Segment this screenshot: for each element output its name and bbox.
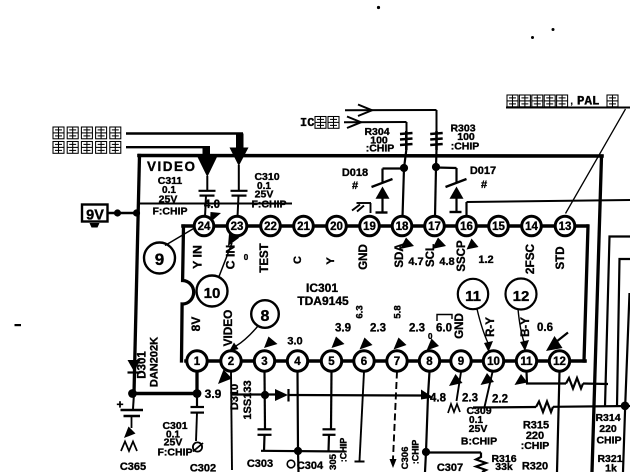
svg-text:220: 220 <box>599 423 617 435</box>
svg-text:R320: R320 <box>522 461 548 472</box>
svg-text:PAL: PAL <box>577 95 600 109</box>
svg-text:C307: C307 <box>437 462 463 472</box>
svg-text:23: 23 <box>231 221 244 233</box>
svg-text:GND: GND <box>454 313 466 339</box>
svg-text:25V: 25V <box>469 423 488 435</box>
svg-text:VIDEO: VIDEO <box>147 159 197 174</box>
svg-text:21: 21 <box>297 221 310 233</box>
svg-text:305: 305 <box>328 453 339 470</box>
svg-text:B-Y: B-Y <box>520 317 532 337</box>
svg-text:15: 15 <box>492 221 505 233</box>
svg-text:B:CHIP: B:CHIP <box>461 436 497 448</box>
svg-text:C303: C303 <box>247 458 273 470</box>
svg-text:2FSC: 2FSC <box>523 243 537 274</box>
svg-text:VIDEO: VIDEO <box>221 310 235 347</box>
svg-text:8: 8 <box>426 356 433 368</box>
svg-text:2.3: 2.3 <box>370 323 386 335</box>
svg-text:C: C <box>292 256 304 264</box>
svg-text:F:CHIP: F:CHIP <box>153 206 188 218</box>
svg-text:C302: C302 <box>190 463 216 472</box>
svg-text:5.8: 5.8 <box>393 305 404 318</box>
svg-text:6: 6 <box>361 356 367 368</box>
svg-text:4.7: 4.7 <box>408 256 423 268</box>
svg-text:GND: GND <box>358 244 370 270</box>
svg-text:8V: 8V <box>189 317 203 332</box>
svg-text:D017: D017 <box>470 165 496 177</box>
svg-text:2.3: 2.3 <box>462 393 478 405</box>
svg-text:SCL: SCL <box>425 244 437 267</box>
svg-text:12: 12 <box>553 356 566 368</box>
svg-text:C IN: C IN <box>224 245 238 270</box>
svg-text:0: 0 <box>244 253 249 262</box>
svg-text::CHIP: :CHIP <box>366 143 395 155</box>
svg-text:4: 4 <box>294 356 301 368</box>
svg-text:0: 0 <box>428 332 433 341</box>
svg-text::CHIP: :CHIP <box>451 141 480 153</box>
svg-text:TDA9145: TDA9145 <box>297 294 349 308</box>
svg-text:2.2: 2.2 <box>492 394 508 406</box>
svg-text:C306: C306 <box>400 447 411 470</box>
svg-text:3.9: 3.9 <box>205 387 222 401</box>
svg-text:10: 10 <box>204 285 221 302</box>
svg-text:Y: Y <box>325 257 337 265</box>
svg-text:9: 9 <box>458 356 464 368</box>
svg-text:6.0: 6.0 <box>436 323 452 335</box>
svg-text:13: 13 <box>559 221 572 233</box>
svg-text:3.9: 3.9 <box>335 323 351 335</box>
svg-text:+: + <box>117 398 124 412</box>
svg-text:7: 7 <box>394 356 400 368</box>
svg-text:4.0: 4.0 <box>204 199 220 211</box>
svg-text:19: 19 <box>363 221 376 233</box>
svg-text:DAN202K: DAN202K <box>149 337 161 387</box>
svg-text:12: 12 <box>513 288 530 305</box>
svg-text:D018: D018 <box>342 167 368 179</box>
svg-text:1k: 1k <box>605 463 617 472</box>
svg-text:4.8: 4.8 <box>430 393 447 405</box>
svg-text:24: 24 <box>198 221 211 233</box>
svg-text:#: # <box>352 180 358 192</box>
svg-text:22: 22 <box>264 221 277 233</box>
svg-text:1.2: 1.2 <box>478 254 493 266</box>
svg-text:17: 17 <box>428 221 441 233</box>
svg-text:25V: 25V <box>159 194 178 206</box>
svg-text:#: # <box>481 179 487 191</box>
svg-text:SSCP: SSCP <box>456 240 468 272</box>
svg-text:SDA: SDA <box>394 243 406 267</box>
svg-text:CHIP: CHIP <box>596 435 621 447</box>
svg-text:F:CHIP: F:CHIP <box>252 199 287 211</box>
svg-text:TEST: TEST <box>259 243 271 272</box>
svg-text:D310: D310 <box>229 384 241 410</box>
svg-text:3.0: 3.0 <box>287 336 302 348</box>
svg-text:20: 20 <box>330 221 343 233</box>
svg-text:11: 11 <box>520 356 533 368</box>
svg-text:18: 18 <box>396 221 409 233</box>
svg-text:11: 11 <box>465 288 481 305</box>
svg-text::CHIP: :CHIP <box>411 440 421 465</box>
svg-text:F:CHIP: F:CHIP <box>158 447 193 459</box>
svg-text:2.3: 2.3 <box>409 323 425 335</box>
svg-text:8: 8 <box>261 308 270 325</box>
svg-text:10: 10 <box>487 356 500 368</box>
svg-text:3: 3 <box>261 356 267 368</box>
svg-text:C365: C365 <box>120 461 146 472</box>
svg-text:2: 2 <box>228 356 234 368</box>
svg-text:9V: 9V <box>86 208 104 224</box>
svg-text:R-Y: R-Y <box>485 317 497 337</box>
svg-text:14: 14 <box>525 221 538 233</box>
svg-text:D301: D301 <box>137 351 149 379</box>
svg-text:16: 16 <box>460 221 473 233</box>
svg-text::CHIP: :CHIP <box>521 440 550 452</box>
svg-text:,: , <box>570 93 573 107</box>
svg-text:C304: C304 <box>297 460 324 472</box>
svg-text:0.6: 0.6 <box>537 322 553 334</box>
svg-text:STD: STD <box>555 247 567 270</box>
svg-text:4.8: 4.8 <box>439 256 454 268</box>
svg-text:6.3: 6.3 <box>355 305 366 318</box>
svg-text:Y IN: Y IN <box>191 245 205 269</box>
svg-text::CHIP: :CHIP <box>339 438 349 463</box>
svg-text:IC301: IC301 <box>306 281 338 295</box>
svg-text:33k: 33k <box>495 461 513 472</box>
svg-text:1: 1 <box>194 356 201 368</box>
svg-text:1SS133: 1SS133 <box>242 380 254 419</box>
svg-text:5: 5 <box>328 356 335 368</box>
svg-text:9: 9 <box>155 250 164 269</box>
svg-text:IC: IC <box>300 116 314 130</box>
